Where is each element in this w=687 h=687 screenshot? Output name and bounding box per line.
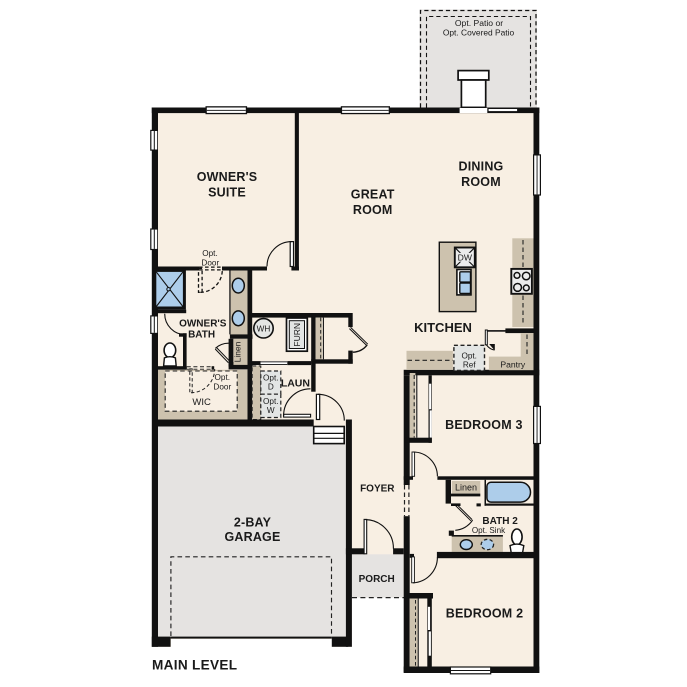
svg-text:ROOM: ROOM [461, 175, 501, 189]
svg-text:Door: Door [213, 383, 231, 392]
svg-text:DW: DW [458, 253, 473, 263]
svg-text:D: D [268, 383, 274, 392]
svg-text:BATH: BATH [188, 329, 215, 340]
svg-text:Opt.: Opt. [215, 373, 230, 382]
svg-text:Ref: Ref [463, 361, 476, 370]
svg-text:MAIN LEVEL: MAIN LEVEL [152, 658, 237, 673]
svg-text:WIC: WIC [192, 397, 211, 408]
svg-text:W: W [267, 406, 275, 415]
svg-text:Opt.: Opt. [263, 397, 278, 406]
svg-text:KITCHEN: KITCHEN [414, 320, 472, 335]
svg-text:2-BAY: 2-BAY [234, 516, 272, 530]
svg-text:OWNER'S: OWNER'S [179, 318, 227, 329]
svg-text:Opt.: Opt. [461, 351, 476, 360]
svg-text:Door: Door [201, 258, 219, 267]
svg-text:FURN: FURN [292, 323, 302, 347]
svg-text:OWNER'S: OWNER'S [197, 170, 258, 184]
svg-text:ROOM: ROOM [353, 203, 393, 217]
svg-text:LAUN: LAUN [281, 377, 310, 389]
svg-text:Opt. Sink: Opt. Sink [472, 526, 506, 535]
svg-text:Linen: Linen [455, 483, 477, 493]
svg-text:FOYER: FOYER [360, 484, 395, 495]
svg-text:BEDROOM 3: BEDROOM 3 [445, 418, 523, 432]
svg-text:Opt.: Opt. [202, 249, 217, 258]
svg-text:Opt. Covered Patio: Opt. Covered Patio [443, 27, 515, 37]
svg-text:BEDROOM 2: BEDROOM 2 [446, 607, 524, 621]
svg-text:DINING: DINING [459, 160, 504, 174]
svg-text:GREAT: GREAT [351, 188, 395, 202]
svg-text:Pantry: Pantry [500, 360, 526, 370]
svg-text:PORCH: PORCH [359, 574, 395, 585]
svg-text:WH: WH [257, 324, 271, 333]
svg-text:Linen: Linen [233, 341, 243, 362]
svg-text:SUITE: SUITE [208, 186, 246, 200]
svg-text:BATH 2: BATH 2 [482, 516, 518, 527]
svg-text:GARAGE: GARAGE [224, 530, 280, 544]
svg-text:Opt.: Opt. [263, 373, 278, 382]
